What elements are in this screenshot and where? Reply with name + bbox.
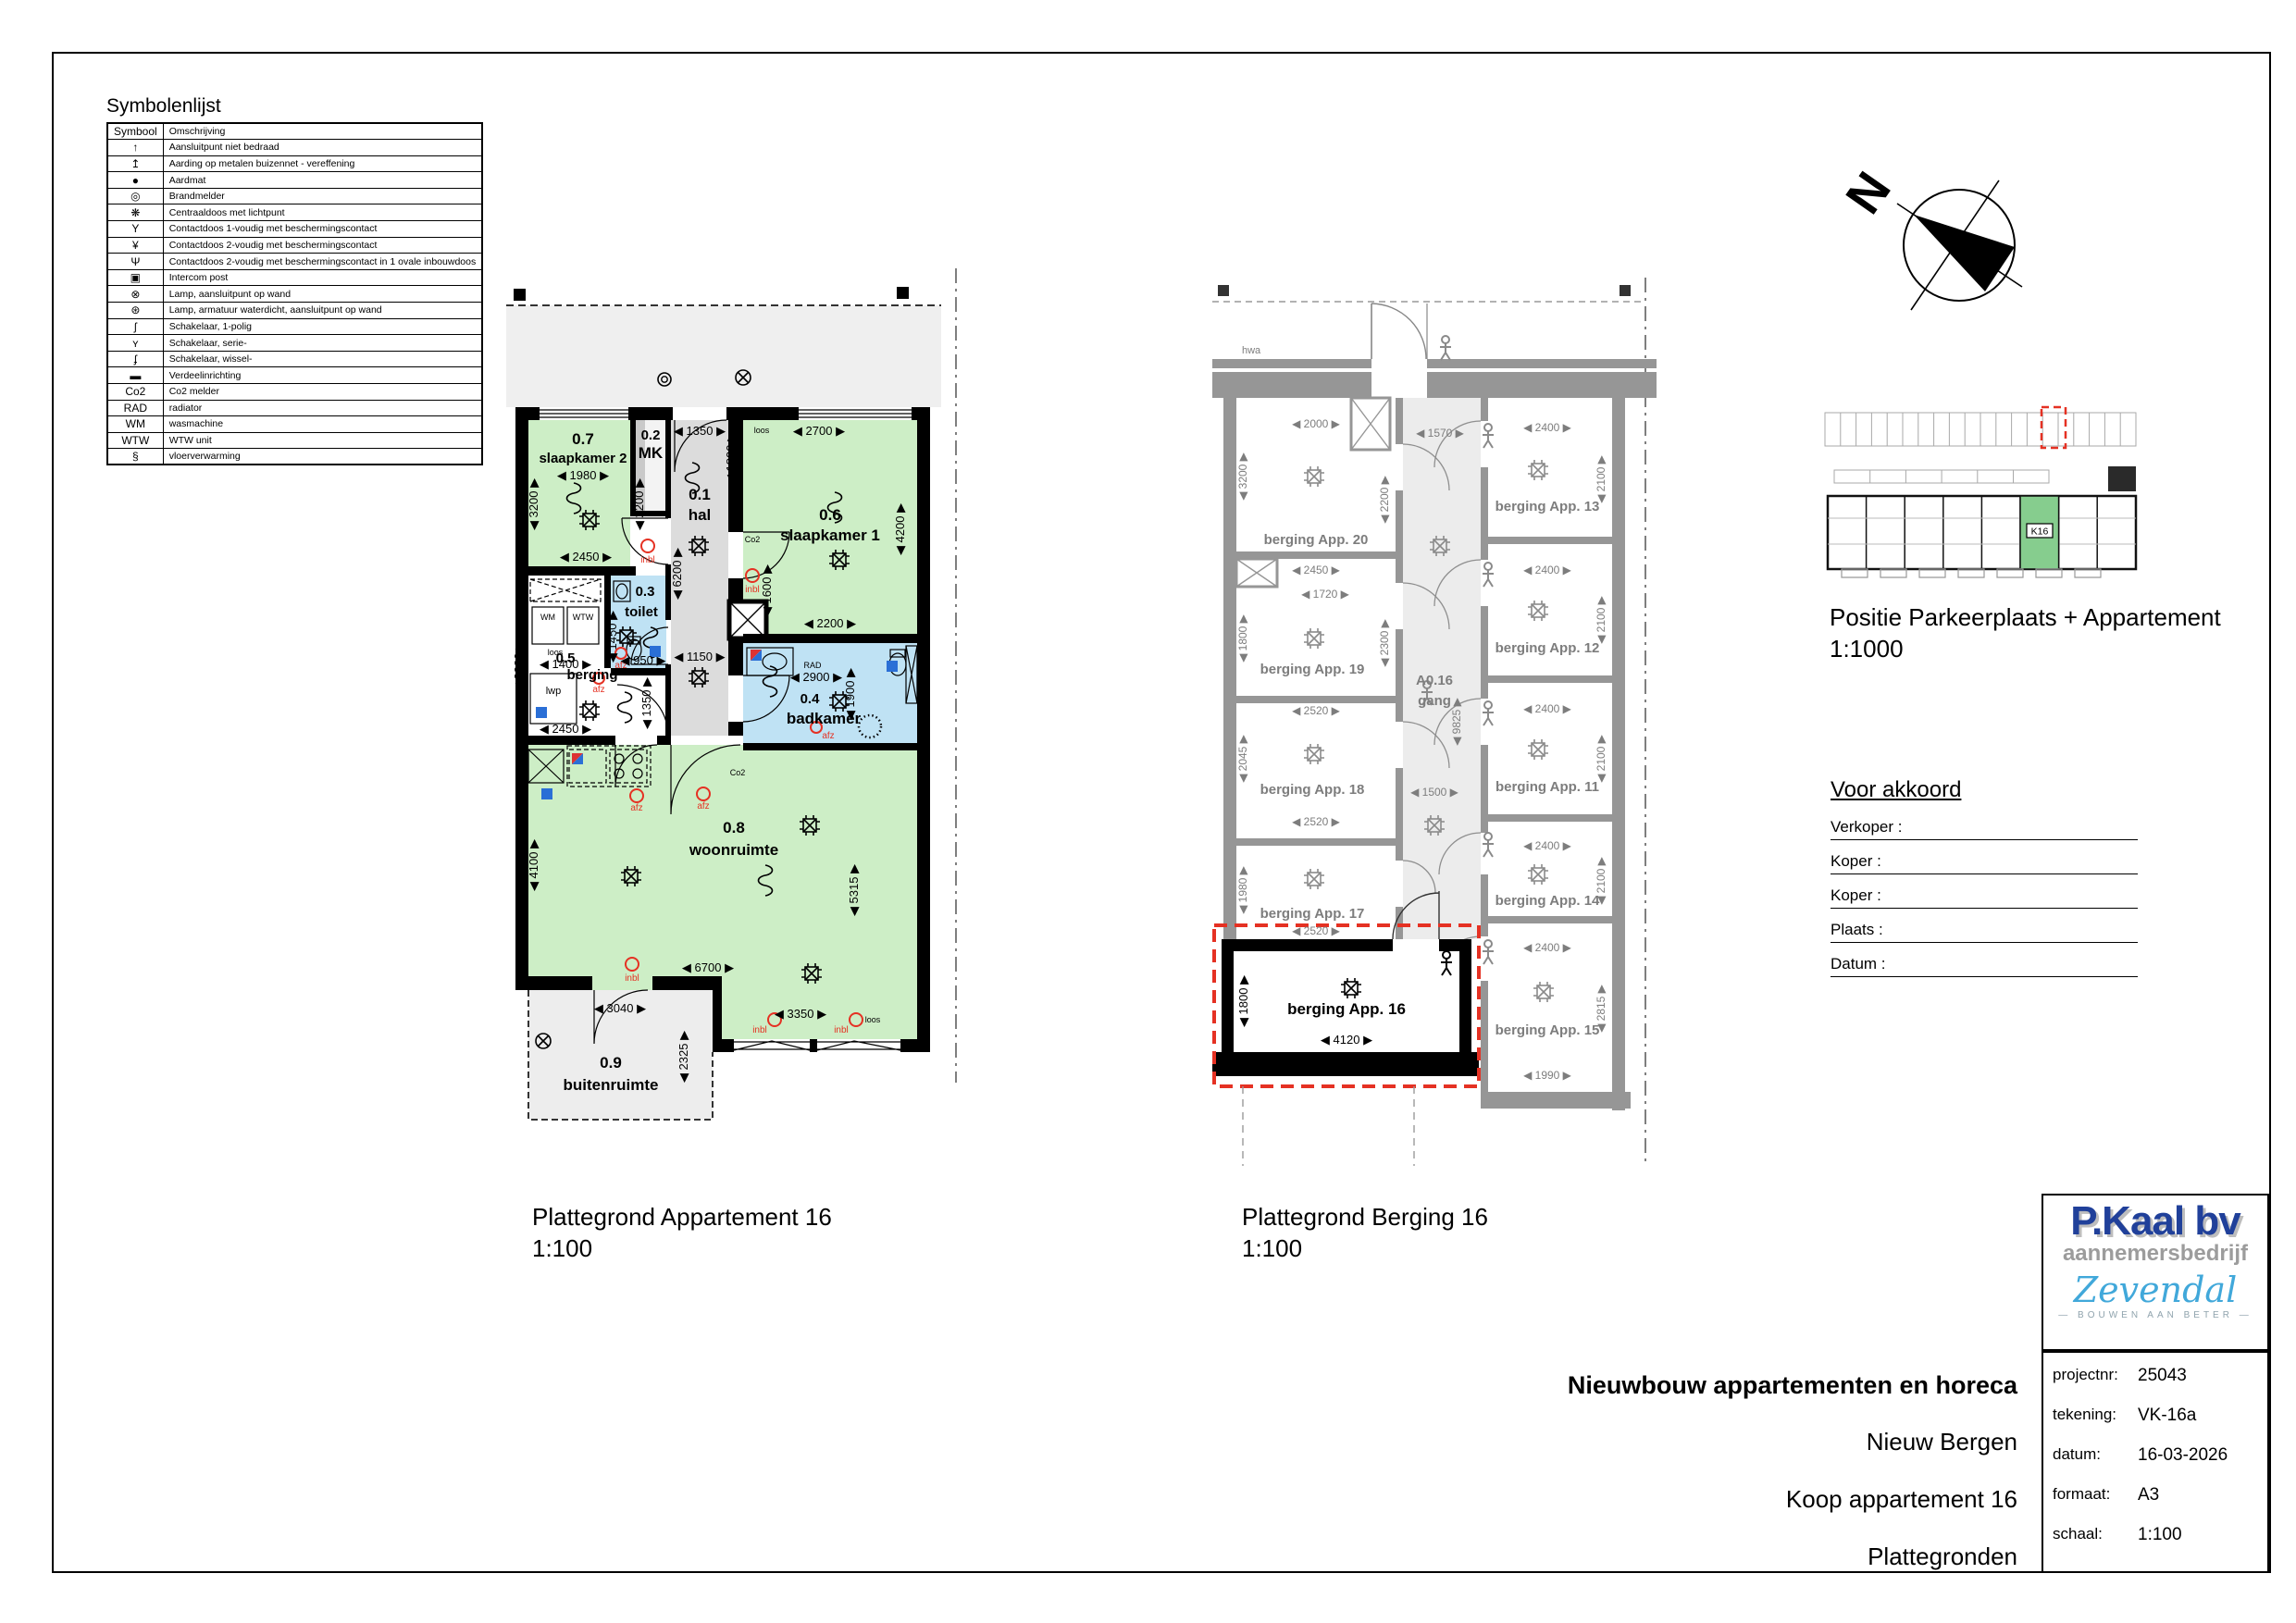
symbol-glyph: Y	[107, 221, 163, 238]
svg-text:◀ 2100 ▶: ◀ 2100 ▶	[1595, 454, 1607, 503]
symbol-description: Schakelaar, serie-	[163, 335, 482, 352]
room-number: 0.7	[572, 430, 594, 448]
room-name: berging App. 16	[1287, 1000, 1406, 1018]
symbol-description: Contactdoos 1-voudig met beschermingscon…	[163, 221, 482, 238]
datum-value: 16-03-2026	[2138, 1445, 2228, 1466]
co2-label: Co2	[730, 768, 746, 777]
symbol-description: radiator	[163, 400, 482, 416]
symbol-row: ΨContactdoos 2-voudig met beschermingsco…	[107, 254, 482, 270]
svg-text:◀ 2400 ▶: ◀ 2400 ▶	[1523, 702, 1572, 715]
symbol-glyph: RAD	[107, 400, 163, 416]
inbl-label: inbl	[745, 585, 760, 595]
svg-text:◀ 2450 ▶: ◀ 2450 ▶	[560, 550, 612, 564]
symbol-description: Lamp, armatuur waterdicht, aansluitpunt …	[163, 303, 482, 319]
afz-label: afz	[697, 801, 709, 811]
projectnr-value: 25043	[2138, 1366, 2187, 1386]
symbol-row: ʃSchakelaar, 1-polig	[107, 318, 482, 335]
symbol-glyph: ¥	[107, 237, 163, 254]
svg-text:◀ 2700 ▶: ◀ 2700 ▶	[793, 424, 845, 438]
unit-label: K16	[2031, 527, 2049, 538]
storage-plan-caption: Plattegrond Berging 16 1:100	[1242, 1201, 1488, 1264]
symbol-glyph: ❋	[107, 204, 163, 221]
co2-label: Co2	[745, 535, 761, 544]
parking-row	[1825, 413, 2136, 483]
svg-text:◀ 2400 ▶: ◀ 2400 ▶	[1523, 564, 1572, 576]
svg-text:◀ 2400 ▶: ◀ 2400 ▶	[1523, 839, 1572, 852]
storage-floor-plan: berging App. 20 berging App. 19 berging …	[1212, 278, 1657, 1184]
room-name: berging App. 11	[1496, 779, 1599, 795]
svg-text:◀ 2200 ▶: ◀ 2200 ▶	[1378, 475, 1391, 524]
approval-block: Voor akkoord Verkoper : Koper : Koper : …	[1831, 777, 2138, 977]
symbol-glyph: ↥	[107, 155, 163, 172]
symbol-description: Centraaldoos met lichtpunt	[163, 204, 482, 221]
symbol-glyph: ●	[107, 172, 163, 189]
symbol-glyph: ▬	[107, 367, 163, 384]
symbol-row: WTWWTW unit	[107, 432, 482, 449]
gallery-walkway	[506, 287, 941, 407]
symbol-description: Intercom post	[163, 269, 482, 286]
svg-text:◀ 1800 ▶: ◀ 1800 ▶	[1236, 975, 1250, 1027]
svg-text:◀ 950 ▶: ◀ 950 ▶	[621, 653, 666, 667]
symbol-description: Schakelaar, 1-polig	[163, 318, 482, 335]
apartment-caption-text: Plattegrond Appartement 16	[532, 1201, 832, 1233]
symbol-row: ▣Intercom post	[107, 269, 482, 286]
approval-field-koper-2: Koper :	[1831, 886, 2138, 909]
svg-text:◀ 1570 ▶: ◀ 1570 ▶	[1416, 427, 1465, 440]
svg-text:◀ 2815 ▶: ◀ 2815 ▶	[1595, 984, 1607, 1033]
drawing-info-box: projectnr:25043 tekening:VK-16a datum:16…	[2042, 1351, 2269, 1573]
svg-text:◀ 6200 ▶: ◀ 6200 ▶	[670, 548, 684, 600]
logo-box: P.Kaal bv aannemersbedrijf Zevendal — BO…	[2042, 1194, 2269, 1351]
svg-text:◀ 2450 ▶: ◀ 2450 ▶	[540, 722, 591, 736]
symbol-glyph: ⊛	[107, 303, 163, 319]
svg-text:◀ 1600 ▶: ◀ 1600 ▶	[760, 564, 774, 616]
datum-label: datum:	[2053, 1445, 2138, 1466]
symbol-glyph: WTW	[107, 432, 163, 449]
svg-text:◀ 2520 ▶: ◀ 2520 ▶	[1292, 924, 1341, 937]
svg-text:◀ 1150 ▶: ◀ 1150 ▶	[674, 650, 725, 663]
svg-text:◀ 2100 ▶: ◀ 2100 ▶	[1595, 734, 1607, 783]
afz-label: afz	[630, 803, 642, 813]
wm-label: WM	[540, 613, 555, 622]
svg-text:◀ 2380 ▶: ◀ 2380 ▶	[512, 640, 526, 692]
approval-field-datum: Datum :	[1831, 955, 2138, 977]
developer-logo-slogan: — BOUWEN AAN BETER —	[2043, 1310, 2267, 1320]
symbol-glyph: ▣	[107, 269, 163, 286]
symbol-row: ▬Verdeelinrichting	[107, 367, 482, 384]
room-name: berging App. 17	[1260, 906, 1365, 922]
approval-title: Voor akkoord	[1831, 777, 2138, 803]
approval-field-verkoper: Verkoper :	[1831, 818, 2138, 840]
svg-text:◀ 2300 ▶: ◀ 2300 ▶	[1378, 618, 1391, 667]
tekening-label: tekening:	[2053, 1406, 2138, 1426]
room-name: berging App. 14	[1496, 893, 1600, 909]
symbol-description: WTW unit	[163, 432, 482, 449]
tekening-value: VK-16a	[2138, 1406, 2196, 1426]
inbl-label: inbl	[625, 973, 639, 984]
symbol-description: Aardmat	[163, 172, 482, 189]
symbol-row: Co2Co2 melder	[107, 384, 482, 401]
symbol-description: Contactdoos 2-voudig met beschermingscon…	[163, 254, 482, 270]
project-subject: Koop appartement 16	[1564, 1485, 2017, 1514]
room-name: berging App. 12	[1496, 640, 1600, 656]
schaal-value: 1:100	[2138, 1525, 2182, 1545]
north-arrow: N	[1805, 130, 2082, 342]
room-name: toilet	[625, 604, 658, 620]
svg-text:◀ 2100 ▶: ◀ 2100 ▶	[1595, 595, 1607, 644]
svg-text:◀ 1450 ▶: ◀ 1450 ▶	[605, 611, 619, 663]
symbol-description: wasmachine	[163, 416, 482, 433]
approval-field-koper-1: Koper :	[1831, 852, 2138, 874]
svg-text:◀ 1900 ▶: ◀ 1900 ▶	[843, 668, 857, 720]
svg-text:◀ 2000 ▶: ◀ 2000 ▶	[1292, 417, 1341, 430]
hwa-label: hwa	[1242, 345, 1261, 356]
approval-field-plaats: Plaats :	[1831, 921, 2138, 943]
contractor-logo-subtitle: aannemersbedrijf	[2043, 1242, 2267, 1266]
symbol-row: RADradiator	[107, 400, 482, 416]
inbl-label: inbl	[834, 1025, 849, 1035]
svg-text:◀ 2900 ▶: ◀ 2900 ▶	[790, 670, 842, 684]
symbol-description: Brandmelder	[163, 188, 482, 204]
svg-text:◀ 1720 ▶: ◀ 1720 ▶	[1301, 588, 1350, 601]
description-column-header: Omschrijving	[163, 123, 482, 140]
svg-text:◀ 1990 ▶: ◀ 1990 ▶	[1523, 1069, 1572, 1082]
loos-label: loos	[548, 648, 564, 657]
svg-text:◀ 4120 ▶: ◀ 4120 ▶	[1321, 1033, 1372, 1047]
svg-text:◀ 6700 ▶: ◀ 6700 ▶	[682, 960, 734, 974]
symbol-row: ↑Aansluitpunt niet bedraad	[107, 140, 482, 156]
sheet-name: Plattegronden	[1564, 1542, 2017, 1571]
position-plan: K16	[1805, 405, 2221, 595]
north-label: N	[1835, 162, 1902, 223]
symbol-glyph: Ψ	[107, 254, 163, 270]
formaat-value: A3	[2138, 1485, 2159, 1505]
symbol-glyph: ʃ	[107, 318, 163, 335]
room-name: berging App. 18	[1260, 782, 1365, 798]
symbol-glyph: WM	[107, 416, 163, 433]
project-title: Nieuwbouw appartementen en horeca	[1564, 1371, 2017, 1400]
symbol-row: WMwasmachine	[107, 416, 482, 433]
svg-text:◀ 3040 ▶: ◀ 3040 ▶	[594, 1001, 646, 1015]
room-name: berging App. 20	[1264, 532, 1369, 548]
symbol-row: YContactdoos 1-voudig met beschermingsco…	[107, 221, 482, 238]
position-plan-caption: Positie Parkeerplaats + Appartement 1:10…	[1830, 601, 2221, 664]
svg-text:◀ 3200 ▶: ◀ 3200 ▶	[527, 478, 540, 530]
svg-text:◀ 2400 ▶: ◀ 2400 ▶	[1523, 421, 1572, 434]
svg-text:◀ 1350 ▶: ◀ 1350 ▶	[639, 677, 653, 729]
apartment-floor-plan: inbl inbl inbl inbl inbl afz afz afz afz…	[504, 268, 967, 1175]
symbol-glyph: ↑	[107, 140, 163, 156]
wtw-label: WTW	[573, 613, 594, 622]
rad-label: RAD	[803, 661, 822, 670]
room-name: MK	[639, 444, 664, 462]
symbol-description: Contactdoos 2-voudig met beschermingscon…	[163, 237, 482, 254]
svg-text:◀ 1980 ▶: ◀ 1980 ▶	[557, 468, 609, 482]
svg-text:◀ 1400 ▶: ◀ 1400 ▶	[540, 657, 591, 671]
afz-label: afz	[822, 731, 834, 741]
room-name: berging App. 15	[1496, 1022, 1600, 1038]
symbol-row: ¥Contactdoos 2-voudig met beschermingsco…	[107, 237, 482, 254]
developer-logo: Zevendal	[2043, 1270, 2267, 1310]
svg-text:◀ 4100 ▶: ◀ 4100 ▶	[527, 839, 540, 891]
inbl-label: inbl	[640, 555, 655, 565]
formaat-label: formaat:	[2053, 1485, 2138, 1505]
symbol-description: Lamp, aansluitpunt op wand	[163, 286, 482, 303]
room-number: 0.1	[689, 486, 711, 503]
building-strip: K16	[1828, 496, 2136, 577]
svg-text:◀ 2400 ▶: ◀ 2400 ▶	[1523, 941, 1572, 954]
symbol-description: Verdeelinrichting	[163, 367, 482, 384]
symbol-description: vloerverwarming	[163, 449, 482, 465]
svg-text:◀ 4200 ▶: ◀ 4200 ▶	[893, 503, 907, 555]
site-structure	[2108, 466, 2136, 491]
svg-text:◀ 3350 ▶: ◀ 3350 ▶	[775, 1007, 826, 1021]
symbol-table: Symbool Omschrijving ↑Aansluitpunt niet …	[106, 122, 483, 465]
apartment-caption-scale: 1:100	[532, 1233, 832, 1264]
room-number: 0.6	[819, 506, 841, 524]
svg-text:◀ 2450 ▶: ◀ 2450 ▶	[1292, 564, 1341, 576]
room-number: 0.4	[800, 691, 821, 707]
position-caption-text: Positie Parkeerplaats + Appartement	[1830, 601, 2221, 633]
room-name: woonruimte	[689, 841, 778, 859]
room-number: 0.2	[641, 427, 661, 443]
room-name: slaapkamer 2	[539, 451, 627, 466]
svg-text:◀ 1350 ▶: ◀ 1350 ▶	[674, 424, 726, 438]
symbol-row: §vloerverwarming	[107, 449, 482, 465]
symbol-row: ʄSchakelaar, wissel-	[107, 351, 482, 367]
symbol-glyph: ʄ	[107, 351, 163, 367]
schaal-label: schaal:	[2053, 1525, 2138, 1545]
corridor-number: A0.16	[1416, 673, 1453, 688]
contractor-logo: P.Kaal bv	[2043, 1201, 2267, 1242]
symbol-description: Aarding op metalen buizennet - vereffeni…	[163, 155, 482, 172]
symbol-glyph: ◎	[107, 188, 163, 204]
symbol-row: ⊗Lamp, aansluitpunt op wand	[107, 286, 482, 303]
symbol-list-title: Symbolenlijst	[106, 95, 483, 118]
symbol-column-header: Symbool	[107, 123, 163, 140]
symbol-row: ↥Aarding op metalen buizennet - vereffen…	[107, 155, 482, 172]
afz-label: afz	[592, 685, 604, 695]
apartment-plan-caption: Plattegrond Appartement 16 1:100	[532, 1201, 832, 1264]
highlighted-parking-spot	[2042, 407, 2066, 448]
room-name: slaapkamer 1	[780, 527, 880, 544]
storage-caption-scale: 1:100	[1242, 1233, 1488, 1264]
svg-text:◀ 2200 ▶: ◀ 2200 ▶	[804, 616, 856, 630]
position-caption-scale: 1:1000	[1830, 633, 2221, 664]
symbol-row: ʏSchakelaar, serie-	[107, 335, 482, 352]
svg-text:◀ 2520 ▶: ◀ 2520 ▶	[1292, 704, 1341, 717]
svg-text:◀ 1980 ▶: ◀ 1980 ▶	[1236, 865, 1249, 914]
symbol-list: Symbolenlijst Symbool Omschrijving ↑Aans…	[106, 95, 483, 465]
svg-text:◀ 1800 ▶: ◀ 1800 ▶	[724, 432, 738, 484]
room-number: 0.9	[600, 1054, 622, 1072]
symbol-row: ◎Brandmelder	[107, 188, 482, 204]
symbol-row: ●Aardmat	[107, 172, 482, 189]
lwp-label: lwp	[546, 686, 562, 697]
loos-label: loos	[865, 1015, 881, 1024]
symbol-description: Schakelaar, wissel-	[163, 351, 482, 367]
svg-text:◀ 1800 ▶: ◀ 1800 ▶	[1236, 613, 1249, 663]
symbol-description: Co2 melder	[163, 384, 482, 401]
svg-text:◀ 9825 ▶: ◀ 9825 ▶	[1450, 697, 1463, 746]
project-location: Nieuw Bergen	[1564, 1428, 2017, 1456]
room-name: berging App. 19	[1260, 662, 1365, 677]
room-name: hal	[689, 506, 712, 524]
symbol-row: ❋Centraaldoos met lichtpunt	[107, 204, 482, 221]
inbl-label: inbl	[752, 1025, 767, 1035]
symbol-glyph: ⊗	[107, 286, 163, 303]
room-number: 0.3	[636, 584, 655, 600]
symbol-glyph: §	[107, 449, 163, 465]
symbol-row: ⊛Lamp, armatuur waterdicht, aansluitpunt…	[107, 303, 482, 319]
svg-text:◀ 2100 ▶: ◀ 2100 ▶	[1595, 856, 1607, 905]
svg-text:◀ 1500 ▶: ◀ 1500 ▶	[1410, 786, 1459, 799]
room-name: buitenruimte	[564, 1076, 659, 1094]
room-name: berging App. 13	[1496, 499, 1600, 514]
symbol-description: Aansluitpunt niet bedraad	[163, 140, 482, 156]
projectnr-label: projectnr:	[2053, 1366, 2138, 1386]
title-block-text: Nieuwbouw appartementen en horeca Nieuw …	[1564, 1371, 2017, 1600]
corridor-name: gang	[1418, 693, 1451, 709]
storage-caption-text: Plattegrond Berging 16	[1242, 1201, 1488, 1233]
symbol-glyph: Co2	[107, 384, 163, 401]
symbol-glyph: ʏ	[107, 335, 163, 352]
loos-label: loos	[754, 426, 770, 435]
room-number: 0.8	[723, 819, 745, 836]
svg-text:◀ 2325 ▶: ◀ 2325 ▶	[676, 1031, 690, 1083]
svg-text:◀ 5315 ▶: ◀ 5315 ▶	[847, 864, 861, 916]
svg-text:◀ 2520 ▶: ◀ 2520 ▶	[1292, 815, 1341, 828]
svg-text:◀ 2045 ▶: ◀ 2045 ▶	[1236, 734, 1249, 783]
svg-text:◀ 2200 ▶: ◀ 2200 ▶	[632, 478, 646, 530]
svg-text:◀ 3200 ▶: ◀ 3200 ▶	[1236, 452, 1249, 501]
